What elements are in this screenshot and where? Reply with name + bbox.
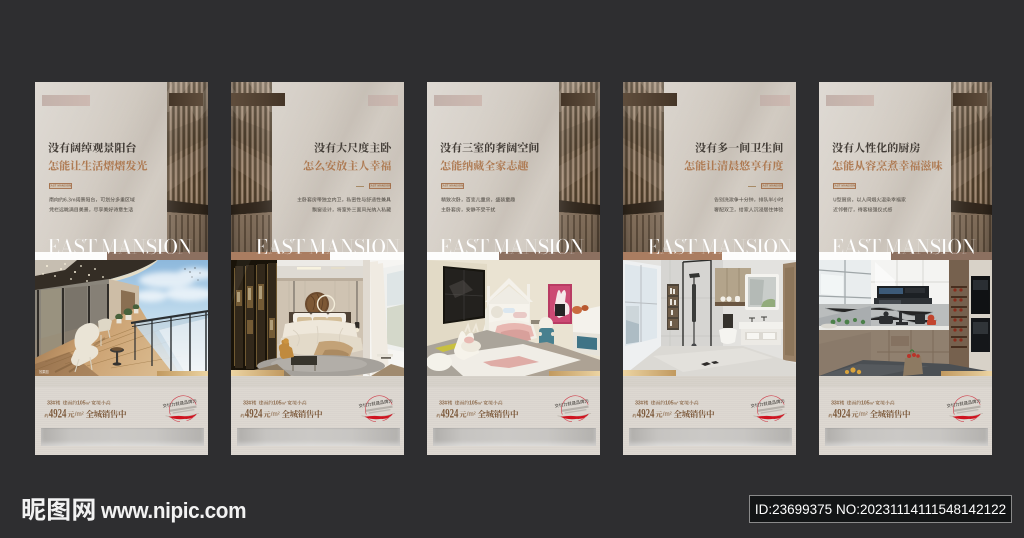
- svg-text:效果图: 效果图: [39, 369, 49, 374]
